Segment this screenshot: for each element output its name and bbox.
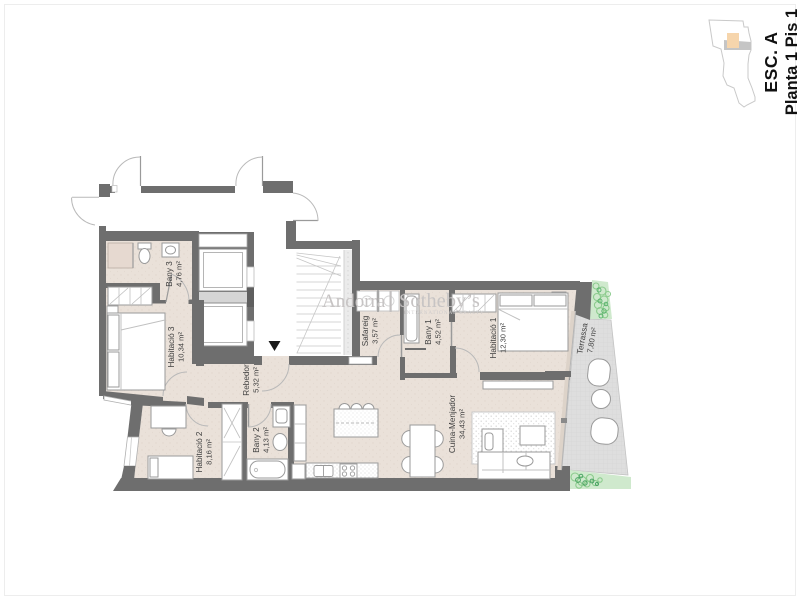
svg-text:Bany 14,52 m²: Bany 14,52 m²	[424, 319, 443, 345]
svg-text:INTERNATIONAL REALTY: INTERNATIONAL REALTY	[404, 310, 485, 316]
svg-text:Andorra: Andorra	[322, 291, 386, 312]
svg-text:Safareig3,57 m²: Safareig3,57 m²	[361, 315, 380, 346]
svg-text:Sotheby’s: Sotheby’s	[399, 290, 480, 312]
svg-text:Bany 34,76 m²: Bany 34,76 m²	[165, 261, 184, 287]
svg-text:Bany 24,13 m²: Bany 24,13 m²	[252, 427, 271, 453]
svg-text:Habitació 310,34 m²: Habitació 310,34 m²	[167, 326, 186, 367]
svg-text:Rebedor5,32 m²: Rebedor5,32 m²	[242, 364, 261, 396]
svg-text:Habitació 112,30 m²: Habitació 112,30 m²	[489, 317, 508, 358]
